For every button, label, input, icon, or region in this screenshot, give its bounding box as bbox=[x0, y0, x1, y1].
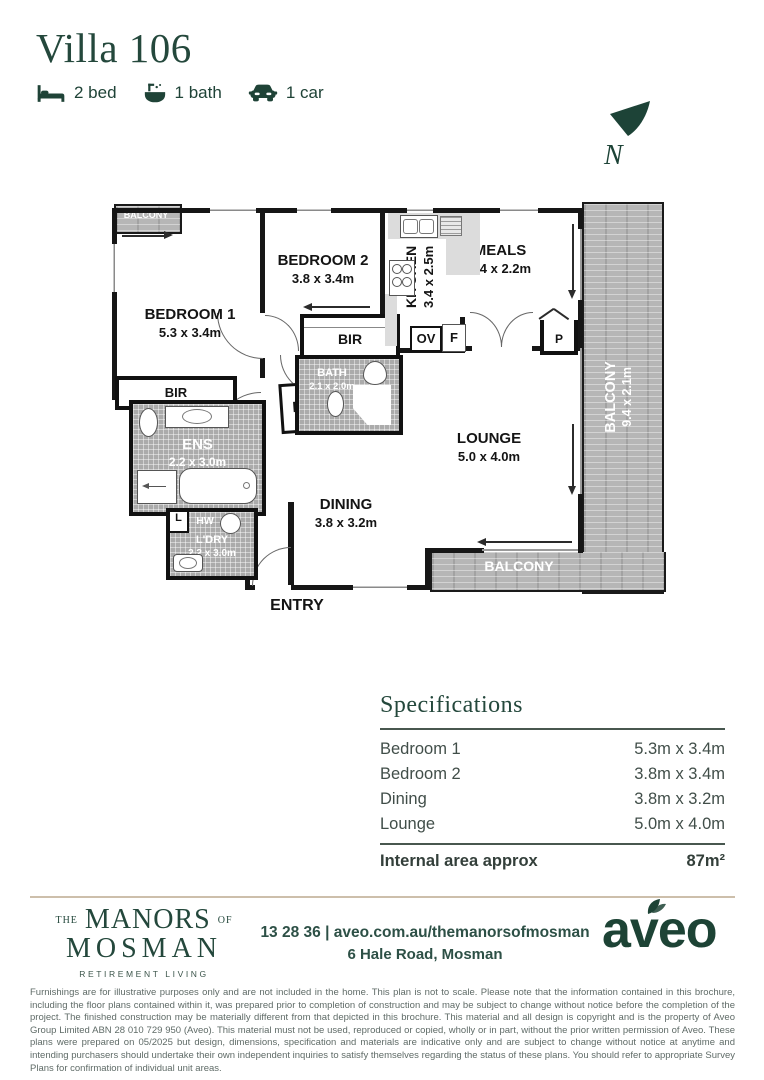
drain bbox=[243, 482, 250, 489]
feature-bath-label: 1 bath bbox=[175, 83, 222, 103]
brand-line1: THE MANORS OF bbox=[35, 906, 253, 934]
wall bbox=[425, 548, 430, 590]
balcony-bottom-label: BALCONY bbox=[464, 558, 574, 576]
window bbox=[353, 585, 407, 590]
disclaimer-text: Furnishings are for illustrative purpose… bbox=[30, 987, 735, 1075]
wall bbox=[291, 585, 353, 590]
leaf-icon bbox=[642, 896, 668, 916]
wall bbox=[578, 300, 583, 348]
pantry-closet: P bbox=[540, 320, 578, 355]
spec-label: Lounge bbox=[380, 815, 435, 834]
window bbox=[112, 244, 117, 292]
feature-bed-label: 2 bed bbox=[74, 83, 117, 103]
wall bbox=[112, 208, 117, 400]
divider bbox=[380, 728, 725, 730]
svg-text:N: N bbox=[603, 140, 624, 171]
toilet bbox=[139, 408, 158, 437]
manors-of-mosman-logo: THE MANORS OF MOSMAN RETIREMENT LIVING bbox=[35, 906, 253, 979]
arrow-head-icon bbox=[568, 486, 576, 495]
oven: OV bbox=[410, 326, 442, 352]
linen2-label: L bbox=[170, 512, 187, 526]
stove-cooktop bbox=[389, 260, 415, 296]
arrow-head-icon bbox=[568, 290, 576, 299]
contact-phone-web[interactable]: 13 28 36 | aveo.com.au/themanorsofmosman bbox=[252, 922, 598, 944]
sink-bowl bbox=[403, 219, 418, 234]
specifications-title: Specifications bbox=[380, 692, 725, 719]
vanity bbox=[165, 406, 229, 428]
spec-label: Bedroom 1 bbox=[380, 740, 461, 759]
spec-total-row: Internal area approx 87m² bbox=[380, 845, 725, 871]
feature-bath: 1 bath bbox=[143, 82, 222, 104]
spec-value: 3.8m x 3.2m bbox=[634, 790, 725, 809]
burner bbox=[402, 264, 412, 274]
tub-bowl bbox=[179, 557, 197, 569]
car-icon bbox=[248, 83, 278, 103]
door-arc bbox=[265, 315, 299, 351]
arrow-head-icon bbox=[164, 231, 173, 239]
specifications-section: Specifications Bedroom 1 5.3m x 3.4m Bed… bbox=[380, 692, 725, 871]
fridge: F bbox=[442, 324, 466, 352]
brand-the: THE bbox=[55, 915, 77, 926]
window bbox=[297, 208, 331, 213]
slider-arrow bbox=[572, 424, 574, 486]
basin bbox=[182, 409, 212, 424]
arrow-head-icon bbox=[477, 538, 486, 546]
slider-arrow bbox=[122, 235, 164, 237]
door-arc bbox=[501, 312, 533, 347]
spec-total-label: Internal area approx bbox=[380, 852, 538, 871]
bedroom1-label: BEDROOM 1 5.3 x 3.4m bbox=[130, 306, 250, 341]
burner bbox=[402, 277, 412, 287]
wall bbox=[430, 548, 484, 553]
spec-label: Dining bbox=[380, 790, 427, 809]
window bbox=[500, 208, 538, 213]
spec-label: Bedroom 2 bbox=[380, 765, 461, 784]
footer-divider bbox=[30, 896, 735, 898]
ens-label: ENS 2.2 x 3.0m bbox=[133, 436, 262, 470]
bir2-label: BIR bbox=[304, 331, 396, 349]
feature-bed: 2 bed bbox=[36, 83, 117, 104]
oven-label: OV bbox=[417, 331, 436, 347]
burner bbox=[392, 264, 402, 274]
specifications-table: Bedroom 1 5.3m x 3.4m Bedroom 2 3.8m x 3… bbox=[380, 737, 725, 837]
spec-total-value: 87m² bbox=[686, 852, 725, 871]
laundry-tub bbox=[173, 554, 203, 572]
basin bbox=[363, 361, 387, 385]
bed-icon bbox=[36, 83, 66, 104]
slider-arrow bbox=[486, 541, 572, 543]
north-compass: N N bbox=[598, 94, 660, 172]
spec-value: 5.0m x 4.0m bbox=[634, 815, 725, 834]
slider-arrow bbox=[312, 306, 370, 308]
bathroom-area: BATH 2.1 x 2.0m bbox=[295, 355, 403, 435]
entry-label: ENTRY bbox=[252, 596, 342, 616]
floor-plan: BALCONY BALCONY 9.4 x 2.1m BALCONY bbox=[112, 202, 662, 630]
balcony-right-label: BALCONY 9.4 x 2.1m bbox=[602, 335, 636, 459]
contact-address: 6 Hale Road, Mosman bbox=[252, 944, 598, 966]
ensuite-area: ENS 2.2 x 3.0m bbox=[129, 400, 266, 516]
brochure-page: { "page": { "title": "Villa 106" }, "fea… bbox=[0, 0, 764, 1080]
hw-label: HW bbox=[192, 515, 218, 528]
arrow-head-icon bbox=[142, 483, 149, 489]
linen-closet: L bbox=[170, 512, 189, 533]
window bbox=[210, 208, 256, 213]
toilet bbox=[327, 391, 344, 417]
spec-value: 5.3m x 3.4m bbox=[634, 740, 725, 759]
kitchen-sink bbox=[400, 215, 438, 238]
north-arrow-icon: N bbox=[598, 94, 660, 172]
arrow-head-icon bbox=[303, 303, 312, 311]
hot-water-unit bbox=[220, 513, 241, 534]
brand-tagline: RETIREMENT LIVING bbox=[35, 969, 253, 979]
burner bbox=[392, 277, 402, 287]
spec-row: Dining 3.8m x 3.2m bbox=[380, 787, 725, 812]
slider-track bbox=[482, 549, 578, 551]
spec-row: Bedroom 1 5.3m x 3.4m bbox=[380, 737, 725, 762]
pantry-door bbox=[554, 308, 570, 320]
dish-rack bbox=[440, 216, 462, 236]
bathtub bbox=[179, 468, 257, 504]
dining-label: DINING 3.8 x 3.2m bbox=[285, 496, 407, 531]
kitchen-counter bbox=[385, 294, 397, 346]
bedroom2-label: BEDROOM 2 3.8 x 3.4m bbox=[262, 252, 384, 287]
wall bbox=[578, 494, 583, 553]
fridge-label: F bbox=[450, 330, 458, 346]
brand-of: OF bbox=[218, 915, 233, 926]
bir1-label: BIR bbox=[165, 385, 187, 401]
feature-car: 1 car bbox=[248, 83, 324, 103]
robe-track bbox=[304, 327, 396, 328]
wall bbox=[578, 213, 583, 229]
aveo-logo: aveo bbox=[602, 900, 742, 960]
shower bbox=[353, 385, 391, 425]
shower-arrow-icon bbox=[146, 486, 166, 487]
door-arc bbox=[470, 312, 502, 347]
pantry-label: P bbox=[544, 332, 574, 347]
bath-icon bbox=[143, 82, 167, 104]
feature-car-label: 1 car bbox=[286, 83, 324, 103]
brand-manors: MANORS bbox=[85, 906, 211, 934]
spec-row: Bedroom 2 3.8m x 3.4m bbox=[380, 762, 725, 787]
brand-mosman: MOSMAN bbox=[35, 934, 253, 964]
spec-value: 3.8m x 3.4m bbox=[634, 765, 725, 784]
spec-row: Lounge 5.0m x 4.0m bbox=[380, 812, 725, 837]
wall bbox=[260, 358, 265, 378]
shower bbox=[137, 470, 177, 504]
sink-bowl bbox=[419, 219, 434, 234]
slider-arrow bbox=[572, 224, 574, 290]
laundry-area: L HW L'DRY 2.2 x 3.0m bbox=[166, 508, 258, 580]
lounge-label: LOUNGE 5.0 x 4.0m bbox=[428, 430, 550, 465]
wall bbox=[407, 585, 430, 590]
page-title: Villa 106 bbox=[36, 24, 192, 72]
feature-list: 2 bed 1 bath 1 car bbox=[36, 82, 324, 104]
pantry-door bbox=[539, 308, 555, 320]
contact-block: 13 28 36 | aveo.com.au/themanorsofmosman… bbox=[252, 922, 598, 966]
